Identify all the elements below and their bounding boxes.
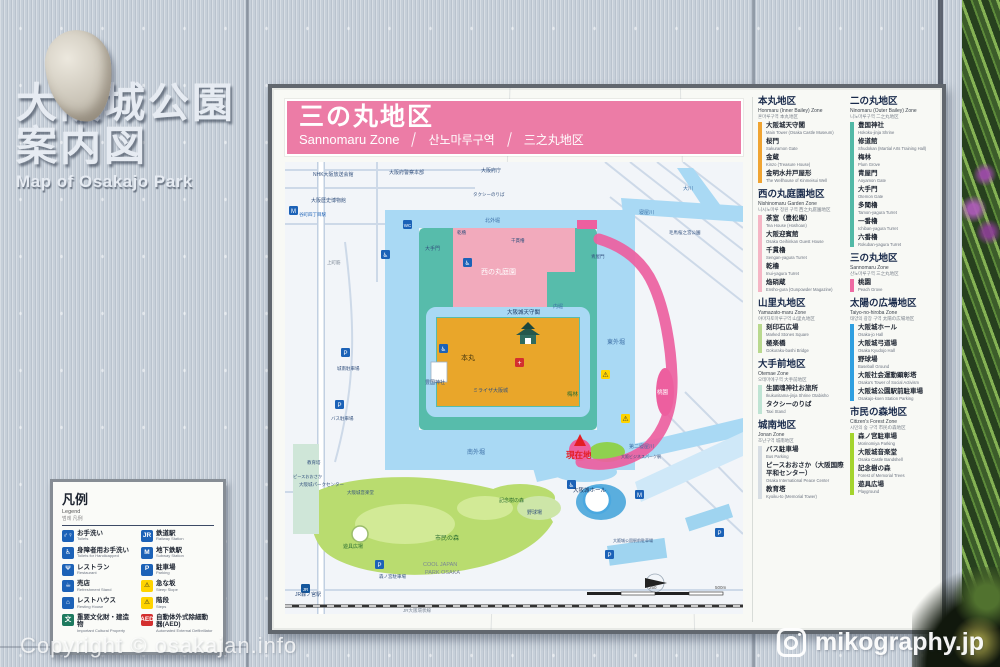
facility-icon: P	[335, 400, 344, 409]
park-title-english: Map of Osakajo Park	[16, 172, 236, 192]
facility-name-english: Aoyamon Gate	[858, 178, 936, 183]
zone-section-title-sub: 야마자토마루구역 山里丸地区	[758, 316, 844, 322]
facility-name: 刻印石広場	[766, 324, 844, 332]
map-label: 谷町四丁目駅	[299, 211, 326, 218]
facility-name-english: Sengan-yagura Turret	[766, 255, 844, 260]
svg-text:♿: ♿	[383, 252, 388, 259]
legend-title: 凡例	[62, 492, 88, 507]
facility-item: 森ノ宮駐車場 Morinomiya Parking	[858, 433, 936, 446]
facility-icon: P	[715, 528, 724, 537]
facility-name-english: Osaka Kyudojo Hall	[858, 348, 936, 353]
hokoku-shrine-block	[431, 362, 447, 382]
legend-item: 文 重要文化財・建造物 Important Cultural Property	[62, 614, 135, 634]
facility-item: 大阪城ホール Osaka-jo Hall	[858, 324, 936, 337]
facility-name-english: Ikukunitama-jinja Shrine Otabisho	[766, 393, 844, 398]
facility-name-english: Peach Grove	[858, 287, 936, 292]
map-label: 寝屋川	[639, 209, 654, 216]
map-label: 上町筋	[327, 259, 341, 266]
svg-text:♿: ♿	[465, 260, 470, 267]
facility-name: 森ノ宮駐車場	[858, 433, 936, 441]
facility-name: 一番櫓	[858, 218, 936, 226]
facility-name: 多聞櫓	[858, 202, 936, 210]
facility-name: 青屋門	[858, 170, 936, 178]
legend-item: AED 自動体外式除細動器(AED) Automated External De…	[141, 614, 214, 634]
zone-section-title-sub: 산노마루구역 三之丸地区	[850, 271, 936, 277]
facility-item: 茶室（豊松庵） Tea House (Hoshoan)	[766, 215, 844, 228]
facility-name-english: Kyoiku-to (Memorial Tower)	[766, 494, 844, 499]
zone-title-english: Sannomaru Zone	[299, 132, 399, 147]
legend-item: ⚠ 階段 Steps	[141, 597, 214, 609]
legend-item: ⌂ レストハウス Resting House	[62, 597, 135, 609]
legend-pictogram-icon: JR	[141, 530, 153, 542]
legend-item-label-english: Refreshment Stand	[77, 588, 111, 593]
zone-section: 太陽の広場地区 Taiyo-no-hiroba Zone 태양의 광장 구역 太…	[850, 299, 936, 401]
legend-divider	[62, 525, 214, 526]
svg-text:P: P	[337, 403, 341, 409]
legend-item: ⚠ 急な坂 Steep Slope	[141, 580, 214, 592]
facility-name: 乾櫓	[766, 263, 844, 271]
map-label: 大阪府庁	[481, 167, 501, 174]
zone-section-title-sub: 혼마루구역 本丸地区	[758, 114, 844, 120]
legend-left-column: ♂♀ お手洗い Toilets ♿ 身障者用お手洗い Toilets for H…	[62, 530, 135, 638]
facility-item: 金明水井戸屋形 The Wellhouse of Kinmeisui Well	[766, 170, 844, 183]
facility-name-english: Tamon-yagura Turret	[858, 210, 936, 215]
facility-name: 梅林	[858, 154, 936, 162]
zone-section-title-sub: 시민의 숲 구역 市民の森地区	[850, 425, 936, 431]
map-label: 大阪城パークセンター	[299, 481, 344, 488]
facility-name-english: Osaka's Tower of Social Activism	[858, 380, 936, 385]
scale-end-label: 500m	[715, 585, 727, 590]
facility-name: 生國魂神社お旅所	[766, 385, 844, 393]
map-label: タクシーのりば	[473, 191, 505, 198]
zone-section-title: 太陽の広場地区	[850, 299, 936, 310]
facility-name-english: Otemon Gate	[858, 194, 936, 199]
facility-item: ピースおおさか（大阪国際平和センター） Osaka International …	[766, 462, 844, 483]
facility-name: 六番櫓	[858, 234, 936, 242]
facility-name: タクシーのりば	[766, 401, 844, 409]
facility-item: 桜門 Sakuramon Gate	[766, 138, 844, 151]
map-label: 大阪ビジネスパーク駅	[621, 453, 661, 459]
facility-item: 大阪迎賓館 Osaka Geihinkan Guest House	[766, 231, 844, 244]
zone-title-japanese: 三の丸地区	[299, 104, 729, 132]
map-label: 市民の森	[435, 534, 459, 542]
zone-section-title-sub: 니시노마루 정원 구역 西之丸庭園地区	[758, 207, 844, 213]
legend-pictogram-icon: ⚠	[141, 580, 153, 592]
zone-title-korean: 산노마루구역	[428, 131, 494, 148]
legend-pictogram-icon: ♂♀	[62, 530, 74, 542]
facility-name: 焔硝蔵	[766, 279, 844, 287]
facility-name: 遊具広場	[858, 481, 936, 489]
facility-icon: ⚠	[601, 370, 610, 379]
facility-name: 教育塔	[766, 486, 844, 494]
facility-item: 一番櫓 Ichiban-yagura Turret	[858, 218, 936, 231]
zone-section-title: 本丸地区	[758, 97, 844, 108]
facility-name: 大阪城公園駅前駐車場	[858, 388, 936, 396]
facility-name: 修道館	[858, 138, 936, 146]
plaza-circle	[352, 526, 368, 542]
svg-text:⚠: ⚠	[602, 371, 609, 379]
map-label: 遊具広場	[343, 543, 363, 550]
legend-pictogram-icon: AED	[141, 614, 153, 626]
facility-item: 焔硝蔵 Ensho-gura (Gunpowder Magazine)	[766, 279, 844, 292]
zone-section: 市民の森地区 Citizen's Forest Zone 시민의 숲 구역 市民…	[850, 408, 936, 494]
legend-pictogram-icon: ⚠	[141, 597, 153, 609]
zone-section: 三の丸地区 Sannomaru Zone 산노마루구역 三之丸地区 桃園 Pea…	[850, 254, 936, 292]
facility-name-english: Playground	[858, 489, 936, 494]
legend-pictogram-icon: ♿	[62, 547, 74, 559]
facility-item: 青屋門 Aoyamon Gate	[858, 170, 936, 183]
facility-icon: ♿	[463, 258, 472, 267]
zone-section-title: 二の丸地区	[850, 97, 936, 108]
header-divider	[507, 132, 512, 147]
legend-item-label-english: Steps	[156, 605, 169, 610]
legend-item: JR 鉄道駅 Railway Station	[141, 530, 214, 542]
map-label: 大手門	[425, 245, 440, 252]
facility-name-english: Osaka Geihinkan Guest House	[766, 239, 844, 244]
legend-item-label: 自動体外式除細動器(AED)	[156, 614, 214, 629]
facility-name: 大阪迎賓館	[766, 231, 844, 239]
facility-name-english: The Wellhouse of Kinmeisui Well	[766, 178, 844, 183]
facility-item: 刻印石広場 Marked Stones Square	[766, 324, 844, 337]
purple-flowers	[962, 140, 1000, 255]
zone-section: 山里丸地区 Yamazato-maru Zone 야마자토마루구역 山里丸地区 …	[758, 299, 844, 353]
zone-section: 二の丸地区 Ninomaru (Outer Bailey) Zone 니노마루구…	[850, 97, 936, 247]
legend-item-label-english: Toilets for Handicapped	[77, 554, 129, 559]
zone-section-title-sub: 오테마에구역 大手前地区	[758, 377, 844, 383]
legend-item: ♿ 身障者用お手洗い Toilets for Handicapped	[62, 547, 135, 559]
map-label: バス駐車場	[331, 415, 354, 422]
facility-name: 大阪社会運動顕彰塔	[858, 372, 936, 380]
facility-name: 金蔵	[766, 154, 844, 162]
map-label: 大阪歴史博物館	[311, 197, 346, 204]
facility-name: 大阪城ホール	[858, 324, 936, 332]
legend-item: M 地下鉄駅 Subway Station	[141, 547, 214, 559]
svg-text:M: M	[637, 493, 642, 499]
facility-name-english: Shudokan (Martial Arts Training Hall)	[858, 146, 936, 151]
svg-text:P: P	[343, 351, 347, 357]
facility-item: 教育塔 Kyoiku-to (Memorial Tower)	[766, 486, 844, 499]
legend-pictogram-icon: 文	[62, 614, 74, 626]
facility-item: 桃園 Peach Grove	[858, 279, 936, 292]
facility-name-english: Taxi Stand	[766, 409, 844, 414]
svg-text:♿: ♿	[441, 346, 446, 353]
legend-right-column: JR 鉄道駅 Railway Station M 地下鉄駅 Subway Sta…	[141, 530, 214, 638]
facility-item: 千貫櫓 Sengan-yagura Turret	[766, 247, 844, 260]
facility-name-english: Osaka Castle Bandshell	[858, 457, 936, 462]
facility-name-english: Marked Stones Square	[766, 332, 844, 337]
facility-name: 金明水井戸屋形	[766, 170, 844, 178]
facility-name: バス駐車場	[766, 446, 844, 454]
facility-item: 大阪社会運動顕彰塔 Osaka's Tower of Social Activi…	[858, 372, 936, 385]
zone-section: 城南地区 Jonan Zone 조난구역 城南地区 バス駐車場 Bus Park…	[758, 421, 844, 499]
park-title-line2: 案内図	[16, 125, 236, 168]
facility-item: 生國魂神社お旅所 Ikukunitama-jinja Shrine Otabis…	[766, 385, 844, 398]
legend-item-label: 重要文化財・建造物	[77, 614, 135, 629]
facility-name-english: Osaka International Peace Center	[766, 478, 844, 483]
map-label: COOL JAPAN	[423, 562, 457, 568]
map-label: 千貫櫓	[511, 237, 525, 244]
jonan-green-strip	[293, 444, 319, 534]
legend-item-label-english: Parking	[156, 571, 176, 576]
map-label: 第二寝屋川	[629, 443, 654, 450]
facility-name-english: Ensho-gura (Gunpowder Magazine)	[766, 287, 844, 292]
zone-section-title: 三の丸地区	[850, 254, 936, 265]
facility-name-english: Kinzo (Treasure House)	[766, 162, 844, 167]
facility-name-english: Forest of Memorial Trees	[858, 473, 936, 478]
facility-name-english: Plum Grove	[858, 162, 936, 167]
facility-name: ピースおおさか（大阪国際平和センター）	[766, 462, 844, 478]
sidebar-right-column: 二の丸地区 Ninomaru (Outer Bailey) Zone 니노마루구…	[850, 97, 936, 622]
map-label: ミライザ大阪城	[473, 387, 508, 394]
facility-name: 豊国神社	[858, 122, 936, 130]
svg-text:P: P	[717, 531, 721, 537]
facility-icon: WC	[403, 220, 412, 229]
facility-icon: P	[605, 550, 614, 559]
scale-mid-label: 250	[649, 585, 657, 590]
map-label: 乾櫓	[457, 229, 466, 236]
legend-pictogram-icon: ⌂	[62, 597, 74, 609]
facility-name-english: Gokuraku-bashi Bridge	[766, 348, 844, 353]
map-label: 教育塔	[307, 459, 321, 466]
map-label: 大阪城音楽堂	[347, 489, 374, 496]
legend-item-label-english: Subway Station	[156, 554, 184, 559]
map-label: 青屋門	[591, 253, 605, 260]
facility-icon: +	[515, 358, 524, 367]
svg-text:P: P	[377, 563, 381, 569]
facility-name-english: Inui-yagura Turret	[766, 271, 844, 276]
zone-title-chinese: 三之丸地区	[524, 131, 584, 148]
facility-item: 大阪城天守閣 Main Tower (Osaka Castle Museum)	[766, 122, 844, 135]
map-label: 桃園	[657, 388, 669, 396]
facility-name: 野球場	[858, 356, 936, 364]
map-label: PARK OSAKA	[425, 570, 460, 576]
facility-name-english: Rokuban-yagura Turret	[858, 242, 936, 247]
zone-section: 大手前地区 Otemae Zone 오테마에구역 大手前地区 生國魂神社お旅所 …	[758, 360, 844, 414]
wall-background: 大阪城公園 案内図 Map of Osakajo Park 三の丸地区 Sann…	[0, 0, 1000, 667]
facility-name: 桜門	[766, 138, 844, 146]
facility-name: 大手門	[858, 186, 936, 194]
zone-section-title: 山里丸地区	[758, 299, 844, 310]
instagram-icon	[777, 628, 806, 657]
map-label: 大阪城ホール	[573, 486, 607, 494]
facility-item: 金蔵 Kinzo (Treasure House)	[766, 154, 844, 167]
facility-name: 大阪城音楽堂	[858, 449, 936, 457]
map-label: JR大阪環状線	[403, 607, 431, 614]
map-label: JR森ノ宮駅	[295, 591, 321, 598]
facility-name-english: Tea House (Hoshoan)	[766, 223, 844, 228]
facility-name-english: Baseball Ground	[858, 364, 936, 369]
facility-name-english: Osaka-jo Hall	[858, 332, 936, 337]
facility-name-english: Ichiban-yagura Turret	[858, 226, 936, 231]
facility-item: 遊具広場 Playground	[858, 481, 936, 494]
watermark-copyright: Copyright © osakajan.info	[20, 633, 297, 659]
map-label: 大阪府警察本部	[389, 169, 424, 176]
facility-icon: ♿	[381, 250, 390, 259]
facility-name: 茶室（豊松庵）	[766, 215, 844, 223]
facility-item: 六番櫓 Rokuban-yagura Turret	[858, 234, 936, 247]
watermark-photographer: mikography.jp	[777, 628, 984, 657]
facility-item: 乾櫓 Inui-yagura Turret	[766, 263, 844, 276]
facility-item: 豊国神社 Hokoku-jinja Shrine	[858, 122, 936, 135]
zone-header-banner: 三の丸地区 Sannomaru Zone 산노마루구역 三之丸地区	[285, 99, 743, 156]
facility-icon: P	[341, 348, 350, 357]
zone-section-title-sub: 태양의 광장 구역 太陽の広場地区	[850, 316, 936, 322]
legend-pictogram-icon: P	[141, 564, 153, 576]
facility-item: 梅林 Plum Grove	[858, 154, 936, 167]
map-label: 豊国神社	[425, 379, 445, 386]
zone-section-title: 城南地区	[758, 421, 844, 432]
facility-name: 千貫櫓	[766, 247, 844, 255]
facility-icon: ⚠	[621, 414, 630, 423]
legend-item-label-english: Steep Slope	[156, 588, 178, 593]
facility-icon: M	[635, 490, 644, 499]
facility-icon: M	[289, 206, 298, 215]
legend-item: P 駐車場 Parking	[141, 564, 214, 576]
map-label: 大阪城公園駅前駐車場	[613, 537, 653, 543]
map-label: 西の丸庭園	[481, 267, 516, 276]
map-signboard: 三の丸地区 Sannomaru Zone 산노마루구역 三之丸地区	[268, 84, 946, 634]
facility-name-english: Osakajo-koen Station Parking	[858, 396, 936, 401]
map-label: 大川	[683, 185, 693, 192]
facility-item: 多聞櫓 Tamon-yagura Turret	[858, 202, 936, 215]
map-label: 記念樹の森	[499, 497, 524, 504]
facility-name-english: Hokoku-jinja Shrine	[858, 130, 936, 135]
facility-name-english: Sakuramon Gate	[766, 146, 844, 151]
facility-icon: ♿	[439, 344, 448, 353]
map-label: NHK大阪放送会館	[313, 171, 354, 178]
legend-item-label-english: Railway Station	[156, 537, 184, 542]
svg-text:WC: WC	[404, 223, 412, 228]
sidebar-left-column: 本丸地区 Honmaru (Inner Bailey) Zone 혼마루구역 本…	[758, 97, 844, 622]
facility-name-english: Morinomiya Parking	[858, 441, 936, 446]
map-label: 本丸	[461, 353, 475, 362]
map-label: 城南駐車場	[337, 365, 360, 372]
legend-item-label-english: Resting House	[77, 605, 116, 610]
svg-text:M: M	[291, 209, 296, 215]
legend-item-label-english: Toilets	[77, 537, 103, 542]
header-divider	[412, 132, 417, 147]
svg-text:+: +	[517, 360, 521, 367]
zone-section-title: 大手前地区	[758, 360, 844, 371]
facility-name: 桃園	[858, 279, 936, 287]
legend-item-label-english: Restaurant	[77, 571, 110, 576]
zone-section-title-sub: 니노마루구역 二之丸地区	[850, 114, 936, 120]
map-label: 東外堀	[607, 338, 625, 346]
wall-seam	[246, 0, 249, 667]
legend-item: ♂♀ お手洗い Toilets	[62, 530, 135, 542]
facility-name: 大阪城弓道場	[858, 340, 936, 348]
map-label: 南外堀	[467, 448, 485, 456]
zone-section-title: 市民の森地区	[850, 408, 936, 419]
map-label: 森ノ宮駐車場	[379, 573, 406, 580]
facility-item: 大手門 Otemon Gate	[858, 186, 936, 199]
facility-item: タクシーのりば Taxi Stand	[766, 401, 844, 414]
svg-text:⚠: ⚠	[622, 415, 629, 423]
facility-item: 大阪城公園駅前駐車場 Osakajo-koen Station Parking	[858, 388, 936, 401]
legend-panel: 凡例 Legend 범례 凡例 ♂♀ お手洗い Toilets ♿ 身障者用お手…	[50, 479, 226, 655]
facility-icon: P	[375, 560, 384, 569]
legend-item: Ψ レストラン Restaurant	[62, 564, 135, 576]
zone-section-title: 西の丸庭園地区	[758, 190, 844, 201]
map-label: ピースおおさか	[293, 473, 323, 480]
map-label: 梅林	[567, 390, 579, 398]
facility-item: 修道館 Shudokan (Martial Arts Training Hall…	[858, 138, 936, 151]
zone-section: 本丸地区 Honmaru (Inner Bailey) Zone 혼마루구역 本…	[758, 97, 844, 183]
facility-item: 野球場 Baseball Ground	[858, 356, 936, 369]
facility-item: 記念樹の森 Forest of Memorial Trees	[858, 465, 936, 478]
legend-pictogram-icon: ☕	[62, 580, 74, 592]
current-location-label: 現在地	[566, 450, 592, 460]
zone-legend-sidebar: 本丸地区 Honmaru (Inner Bailey) Zone 혼마루구역 本…	[752, 97, 938, 622]
map-label: 大阪城天守閣	[507, 308, 541, 316]
legend-title-sub: 범례 凡例	[62, 515, 214, 522]
facility-name: 大阪城天守閣	[766, 122, 844, 130]
zone-section: 西の丸庭園地区 Nishinomaru Garden Zone 니시노마루 정원…	[758, 190, 844, 292]
facility-name: 記念樹の森	[858, 465, 936, 473]
facility-name-english: Bus Parking	[766, 454, 844, 459]
watermark-site-name: mikography.jp	[815, 628, 984, 657]
park-map: 現在地 250 500m M	[285, 162, 743, 614]
map-label: 北外堀	[485, 217, 500, 224]
facility-name-english: Main Tower (Osaka Castle Museum)	[766, 130, 844, 135]
facility-item: 極楽橋 Gokuraku-bashi Bridge	[766, 340, 844, 353]
map-label: 内堀	[553, 303, 563, 310]
facility-item: 大阪城弓道場 Osaka Kyudojo Hall	[858, 340, 936, 353]
park-sign-title: 大阪城公園 案内図 Map of Osakajo Park	[16, 82, 236, 192]
map-label: 毛馬桜之宮公園	[669, 229, 701, 236]
map-label: 野球場	[527, 509, 542, 516]
facility-item: バス駐車場 Bus Parking	[766, 446, 844, 459]
facility-item: 大阪城音楽堂 Osaka Castle Bandshell	[858, 449, 936, 462]
zone-section-title-sub: 조난구역 城南地区	[758, 438, 844, 444]
legend-pictogram-icon: Ψ	[62, 564, 74, 576]
svg-text:P: P	[607, 553, 611, 559]
legend-item: ☕ 売店 Refreshment Stand	[62, 580, 135, 592]
legend-pictogram-icon: M	[141, 547, 153, 559]
facility-name: 極楽橋	[766, 340, 844, 348]
